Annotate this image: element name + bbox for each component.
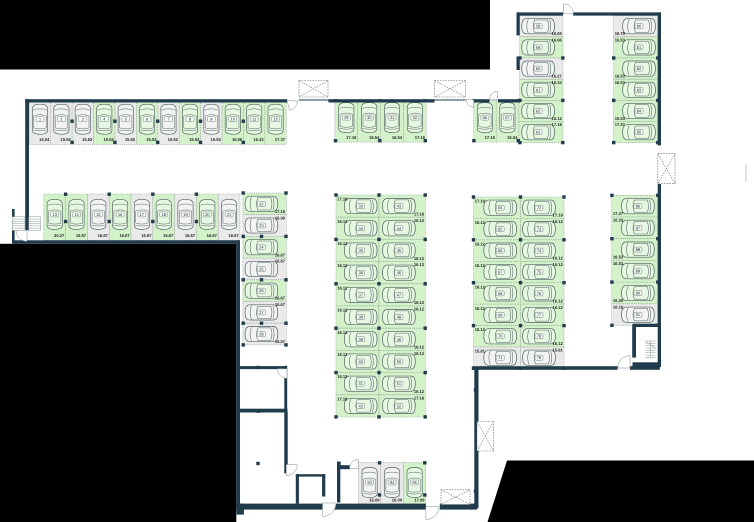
svg-text:16.12: 16.12: [414, 389, 425, 394]
svg-text:67: 67: [498, 269, 503, 274]
svg-text:82: 82: [637, 66, 642, 71]
svg-text:42: 42: [358, 403, 363, 408]
svg-text:12: 12: [273, 117, 278, 122]
svg-text:15.52: 15.52: [61, 137, 72, 142]
svg-text:15: 15: [96, 212, 101, 217]
svg-text:72: 72: [537, 205, 542, 210]
svg-text:16.75: 16.75: [615, 31, 626, 36]
svg-text:49: 49: [397, 337, 402, 342]
svg-text:69: 69: [498, 312, 503, 317]
svg-text:16.67: 16.67: [98, 233, 109, 238]
svg-text:18: 18: [161, 212, 166, 217]
svg-text:16.12: 16.12: [475, 327, 486, 332]
svg-text:85: 85: [637, 130, 642, 135]
svg-text:52: 52: [397, 403, 402, 408]
svg-text:64: 64: [498, 205, 503, 210]
svg-text:16.12: 16.12: [337, 352, 348, 357]
svg-text:16.12: 16.12: [553, 305, 564, 310]
svg-text:71: 71: [498, 355, 503, 360]
svg-text:61: 61: [536, 87, 541, 92]
svg-text:16.12: 16.12: [414, 351, 425, 356]
svg-text:83: 83: [637, 87, 642, 92]
svg-text:16.53: 16.53: [615, 116, 626, 121]
svg-text:16.12: 16.12: [414, 300, 425, 305]
svg-text:16.12: 16.12: [414, 262, 425, 267]
svg-text:16.12: 16.12: [337, 241, 348, 246]
svg-text:57: 57: [505, 115, 510, 120]
svg-text:31: 31: [390, 115, 395, 120]
svg-text:28: 28: [259, 332, 264, 337]
svg-text:74: 74: [537, 248, 542, 253]
svg-text:15.52: 15.52: [211, 137, 222, 142]
svg-text:16.12: 16.12: [337, 219, 348, 224]
svg-text:33: 33: [358, 204, 363, 209]
svg-text:90: 90: [636, 290, 641, 295]
svg-text:38: 38: [358, 315, 363, 320]
svg-text:16.67: 16.67: [228, 233, 239, 238]
svg-text:16.12: 16.12: [475, 220, 486, 225]
svg-text:17.16: 17.16: [275, 209, 286, 214]
svg-text:37: 37: [358, 292, 363, 297]
svg-text:45: 45: [397, 248, 402, 253]
svg-text:16.67: 16.67: [275, 302, 286, 307]
svg-text:16.54: 16.54: [507, 135, 518, 140]
svg-text:16.67: 16.67: [275, 259, 286, 264]
svg-text:15.81: 15.81: [475, 349, 486, 354]
svg-text:24: 24: [259, 245, 264, 250]
svg-text:16.53: 16.53: [615, 80, 626, 85]
svg-text:16.06: 16.06: [232, 137, 243, 142]
svg-text:36: 36: [358, 270, 363, 275]
svg-text:40: 40: [358, 359, 363, 364]
svg-text:21: 21: [227, 212, 232, 217]
svg-text:25: 25: [259, 266, 264, 271]
svg-text:16: 16: [118, 212, 123, 217]
svg-text:95: 95: [412, 480, 417, 485]
svg-text:43: 43: [397, 204, 402, 209]
svg-text:29: 29: [344, 115, 349, 120]
svg-text:16.54: 16.54: [392, 135, 403, 140]
svg-text:13: 13: [52, 212, 57, 217]
svg-text:16.67: 16.67: [275, 252, 286, 257]
svg-text:23: 23: [259, 223, 264, 228]
svg-text:16.12: 16.12: [552, 116, 563, 121]
svg-text:16.53: 16.53: [615, 37, 626, 42]
svg-text:87: 87: [636, 225, 641, 230]
svg-text:88: 88: [636, 247, 641, 252]
svg-text:75: 75: [537, 269, 542, 274]
svg-text:76: 76: [537, 291, 542, 296]
svg-text:91: 91: [636, 312, 641, 317]
svg-text:16.53: 16.53: [615, 73, 626, 78]
svg-text:16.12: 16.12: [553, 219, 564, 224]
svg-text:48: 48: [397, 315, 402, 320]
svg-text:16.67: 16.67: [163, 233, 174, 238]
svg-text:16.66: 16.66: [552, 37, 563, 42]
svg-text:34: 34: [358, 226, 363, 231]
svg-text:16.67: 16.67: [275, 296, 286, 301]
svg-text:56: 56: [483, 115, 488, 120]
svg-text:16.12: 16.12: [414, 256, 425, 261]
svg-text:14: 14: [74, 212, 79, 217]
svg-text:86: 86: [636, 204, 641, 209]
svg-text:93: 93: [367, 480, 372, 485]
svg-text:39: 39: [358, 337, 363, 342]
svg-text:16.67: 16.67: [185, 233, 196, 238]
svg-text:16.33: 16.33: [613, 218, 624, 223]
svg-text:70: 70: [498, 334, 503, 339]
svg-text:16.27: 16.27: [552, 73, 563, 78]
svg-text:17.18: 17.18: [414, 211, 425, 216]
svg-text:60: 60: [536, 66, 541, 71]
svg-text:79: 79: [537, 355, 542, 360]
svg-text:15.52: 15.52: [103, 137, 114, 142]
svg-text:35: 35: [358, 248, 363, 253]
svg-text:73: 73: [537, 227, 542, 232]
svg-text:16.65: 16.65: [552, 31, 563, 36]
svg-text:16.12: 16.12: [337, 330, 348, 335]
svg-text:51: 51: [397, 381, 402, 386]
svg-text:17.18: 17.18: [337, 197, 348, 202]
svg-text:94: 94: [390, 480, 395, 485]
svg-text:58: 58: [536, 24, 541, 29]
svg-text:30: 30: [367, 115, 372, 120]
svg-text:78: 78: [537, 334, 542, 339]
svg-text:63: 63: [536, 130, 541, 135]
svg-text:77: 77: [537, 312, 542, 317]
svg-text:16.20: 16.20: [613, 298, 624, 303]
svg-text:14.04: 14.04: [39, 137, 50, 142]
svg-text:10: 10: [231, 117, 236, 122]
svg-text:17.09: 17.09: [414, 498, 425, 503]
svg-text:16.12: 16.12: [553, 262, 564, 267]
svg-text:16.12: 16.12: [553, 298, 564, 303]
svg-text:16.09: 16.09: [369, 498, 380, 503]
svg-text:17.18: 17.18: [552, 122, 563, 127]
svg-text:16.12: 16.12: [414, 307, 425, 312]
svg-text:41: 41: [358, 381, 363, 386]
svg-text:17.18: 17.18: [414, 395, 425, 400]
svg-text:16.12: 16.12: [475, 306, 486, 311]
svg-text:22: 22: [259, 201, 264, 206]
svg-text:16.12: 16.12: [475, 263, 486, 268]
svg-text:16.53: 16.53: [613, 255, 624, 260]
svg-text:15.52: 15.52: [82, 137, 93, 142]
svg-text:17.18: 17.18: [337, 396, 348, 401]
svg-text:17.16: 17.16: [485, 135, 496, 140]
svg-text:15.52: 15.52: [125, 137, 136, 142]
svg-text:16.12: 16.12: [475, 284, 486, 289]
svg-text:15.81: 15.81: [553, 348, 564, 353]
svg-text:16.00: 16.00: [275, 215, 286, 220]
svg-text:47: 47: [397, 292, 402, 297]
svg-text:16.53: 16.53: [613, 261, 624, 266]
svg-text:44: 44: [397, 226, 402, 231]
svg-text:16.67: 16.67: [119, 233, 130, 238]
svg-text:17.10: 17.10: [475, 199, 486, 204]
svg-text:16.12: 16.12: [553, 341, 564, 346]
svg-text:16.16: 16.16: [613, 304, 624, 309]
svg-text:19: 19: [183, 212, 188, 217]
svg-text:50: 50: [397, 359, 402, 364]
svg-text:16.12: 16.12: [337, 308, 348, 313]
svg-text:16.67: 16.67: [207, 233, 218, 238]
svg-text:16.12: 16.12: [475, 242, 486, 247]
svg-text:62: 62: [536, 108, 541, 113]
svg-text:80: 80: [637, 24, 642, 29]
svg-text:16.33: 16.33: [253, 137, 264, 142]
svg-text:16.33: 16.33: [552, 80, 563, 85]
svg-text:17.27: 17.27: [613, 211, 624, 216]
svg-text:46: 46: [397, 270, 402, 275]
svg-text:16.67: 16.67: [141, 233, 152, 238]
svg-text:16.12: 16.12: [337, 263, 348, 268]
svg-text:26: 26: [259, 288, 264, 293]
svg-text:65: 65: [498, 227, 503, 232]
svg-text:66: 66: [498, 248, 503, 253]
svg-text:59: 59: [536, 45, 541, 50]
svg-text:17.27: 17.27: [615, 122, 626, 127]
svg-text:32: 32: [413, 115, 418, 120]
svg-text:16.12: 16.12: [337, 285, 348, 290]
svg-text:16.12: 16.12: [414, 218, 425, 223]
svg-text:20.27: 20.27: [54, 233, 65, 238]
svg-text:15.52: 15.52: [168, 137, 179, 142]
svg-text:16.67: 16.67: [76, 233, 87, 238]
svg-text:15.52: 15.52: [146, 137, 157, 142]
svg-text:17.37: 17.37: [275, 137, 286, 142]
svg-text:16.12: 16.12: [337, 374, 348, 379]
svg-text:84: 84: [637, 108, 642, 113]
svg-text:20: 20: [205, 212, 210, 217]
svg-text:15.52: 15.52: [189, 137, 200, 142]
svg-text:16.09: 16.09: [392, 498, 403, 503]
svg-text:17: 17: [140, 212, 145, 217]
svg-text:17.16: 17.16: [346, 135, 357, 140]
svg-text:68: 68: [498, 291, 503, 296]
svg-text:27: 27: [259, 310, 264, 315]
svg-text:89: 89: [636, 269, 641, 274]
svg-text:16.12: 16.12: [414, 345, 425, 350]
svg-text:17.18: 17.18: [553, 213, 564, 218]
svg-text:81: 81: [637, 45, 642, 50]
svg-text:16.07: 16.07: [275, 339, 286, 344]
svg-text:16.12: 16.12: [553, 256, 564, 261]
